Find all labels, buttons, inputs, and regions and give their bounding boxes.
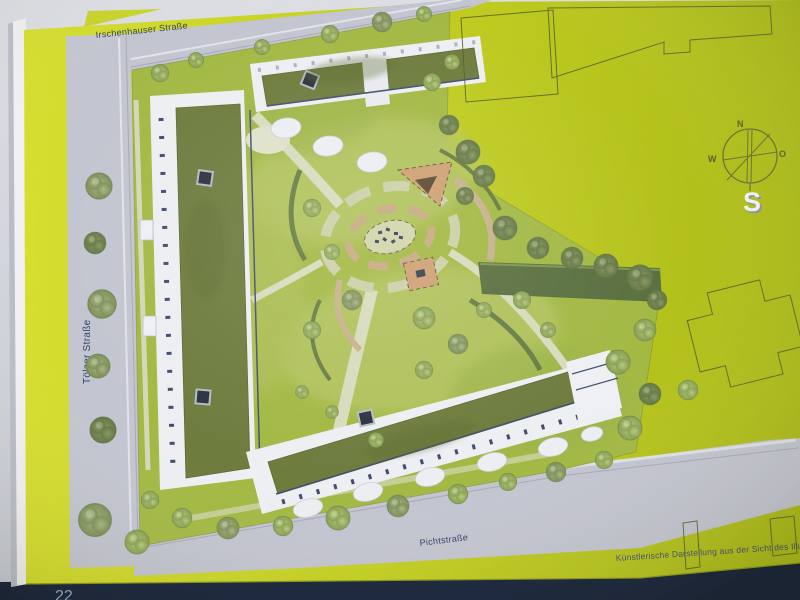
compass-north-label: N: [737, 119, 744, 129]
compass-east-label: O: [779, 149, 786, 159]
compass-west-label: W: [708, 154, 717, 164]
page: Irschenhauser Straße Tölzer Straße Picht…: [24, 0, 800, 584]
page-number: 22: [55, 588, 73, 600]
compass-south-label: S: [743, 187, 761, 217]
book-photo: 22 Irschenhauser Straße Tölzer Straße P: [0, 0, 800, 600]
site-plan-photo: 22 Irschenhauser Straße Tölzer Straße P: [0, 0, 800, 600]
